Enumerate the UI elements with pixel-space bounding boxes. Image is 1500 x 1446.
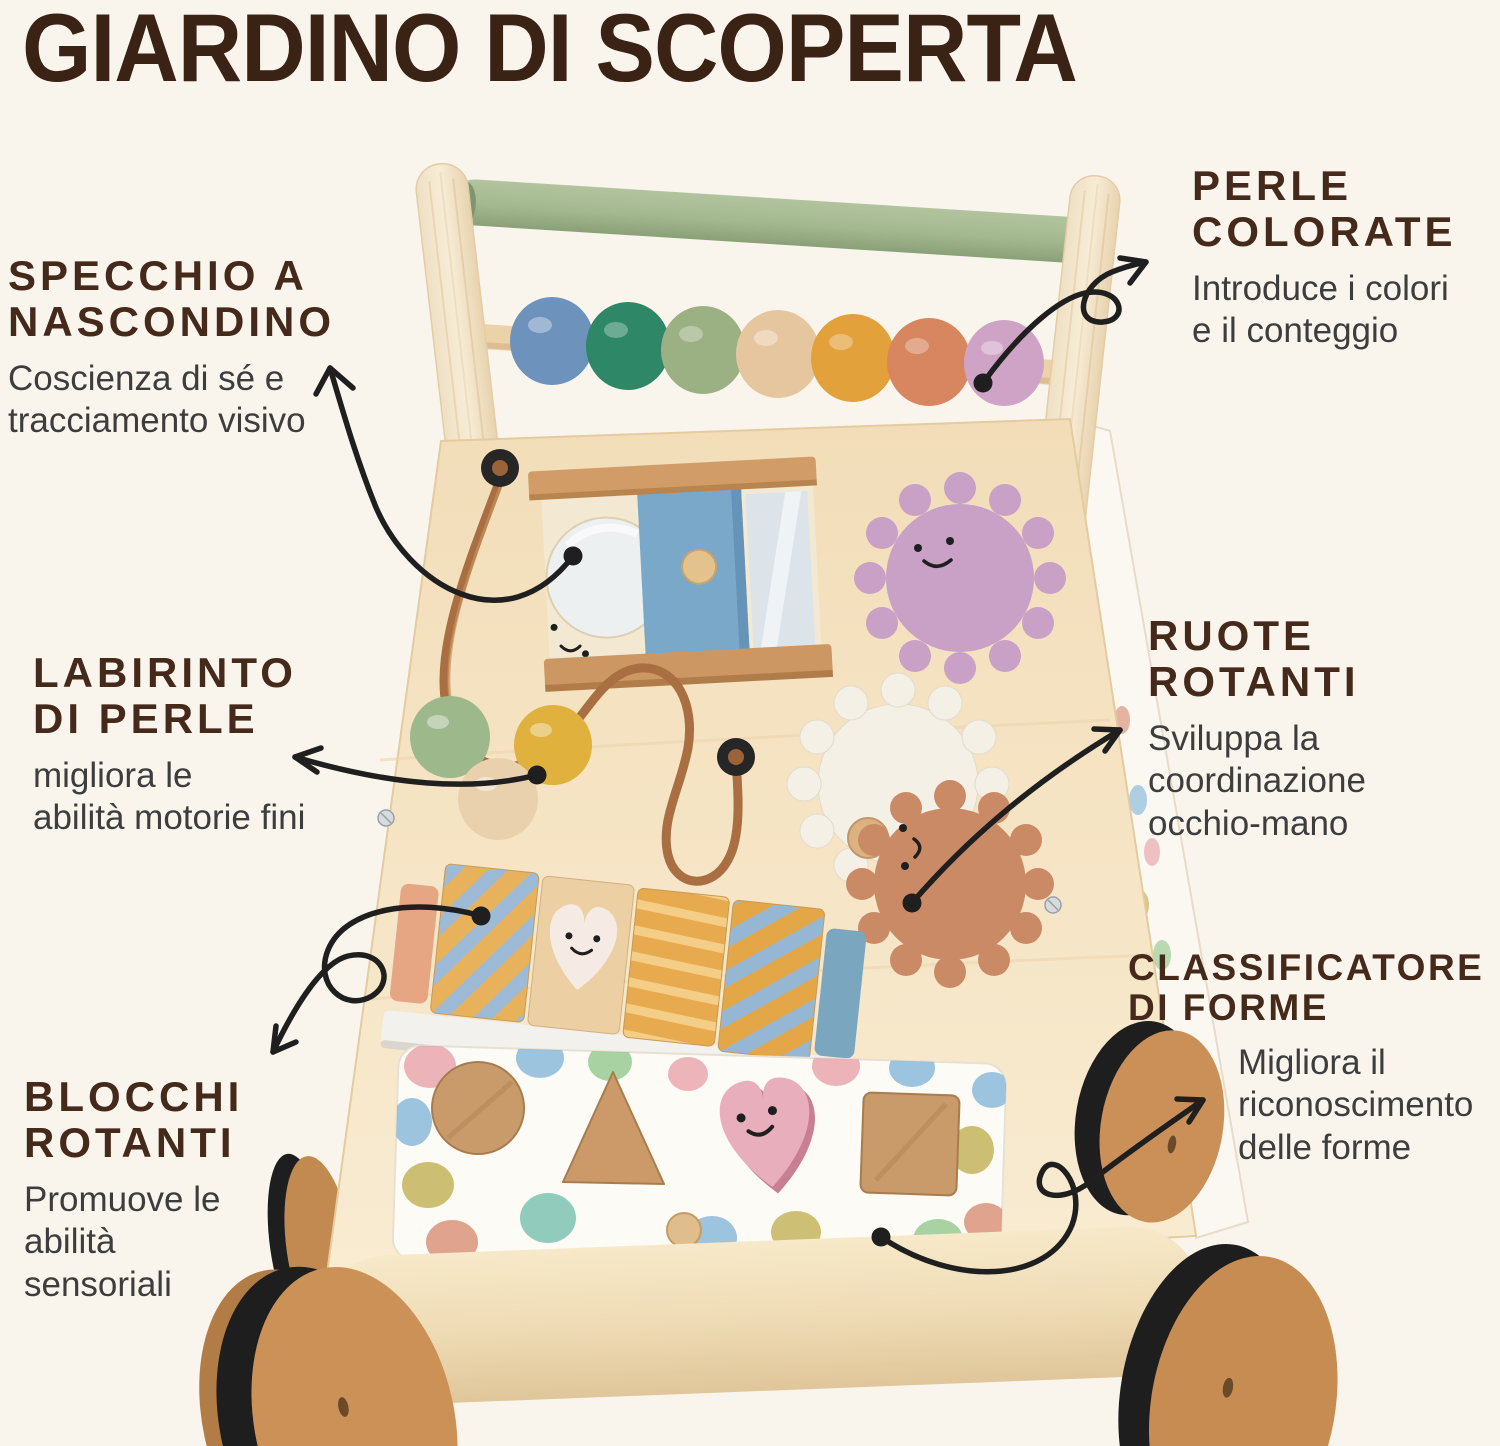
abacus-bead — [811, 314, 895, 402]
callout-specchio-body: Coscienza di sé e tracciamento visivo — [8, 358, 335, 443]
sorter-knob — [667, 1213, 701, 1247]
callout-classificatore-body: Migliora il riconoscimento delle forme — [1238, 1042, 1484, 1170]
block-striped — [623, 888, 730, 1047]
callout-specchio-heading: SPECCHIO A NASCONDINO — [8, 253, 335, 345]
callout-labirinto-heading: LABIRINTO DI PERLE — [33, 650, 305, 742]
abacus-bead — [736, 310, 820, 398]
maze-bead — [458, 758, 538, 840]
abacus-beads — [510, 297, 1044, 406]
callout-perle-heading: PERLE COLORATE — [1192, 163, 1457, 255]
abacus-bead — [661, 306, 745, 394]
callout-ruote-heading: RUOTE ROTANTI — [1148, 613, 1366, 705]
handlebar — [451, 178, 1089, 264]
callout-labirinto: LABIRINTO DI PERLE migliora le abilità m… — [33, 650, 305, 840]
callout-perle: PERLE COLORATE Introduce i colori e il c… — [1192, 163, 1457, 353]
callout-ruote-body: Sviluppa la coordinazione occhio-mano — [1148, 718, 1366, 846]
callout-specchio: SPECCHIO A NASCONDINO Coscienza di sé e … — [8, 253, 335, 443]
door-knob — [681, 549, 717, 585]
abacus-bead — [887, 318, 971, 406]
callout-blocchi: BLOCCHI ROTANTI Promuove le abilità sens… — [24, 1074, 243, 1307]
block-striped — [718, 900, 825, 1061]
cutout-circle — [432, 1062, 524, 1154]
callout-labirinto-body: migliora le abilità motorie fini — [33, 755, 305, 840]
callout-blocchi-heading: BLOCCHI ROTANTI — [24, 1074, 243, 1166]
infographic-page: GIARDINO DI SCOPERTA — [0, 0, 1500, 1446]
abacus-bead — [510, 297, 594, 385]
abacus-bead — [964, 320, 1044, 406]
callout-ruote: RUOTE ROTANTI Sviluppa la coordinazione … — [1148, 613, 1366, 846]
callout-perle-body: Introduce i colori e il conteggio — [1192, 268, 1457, 353]
block-heart — [527, 876, 634, 1035]
callout-classificatore-heading: CLASSIFICATORE DI FORME — [1128, 948, 1484, 1029]
block-striped — [430, 864, 539, 1023]
abacus-bead — [586, 302, 670, 390]
callout-classificatore: CLASSIFICATORE DI FORME Migliora il rico… — [1128, 948, 1484, 1170]
abacus — [449, 297, 1089, 406]
peekaboo-mirror — [528, 456, 833, 692]
callout-blocchi-body: Promuove le abilità sensoriali — [24, 1179, 243, 1307]
